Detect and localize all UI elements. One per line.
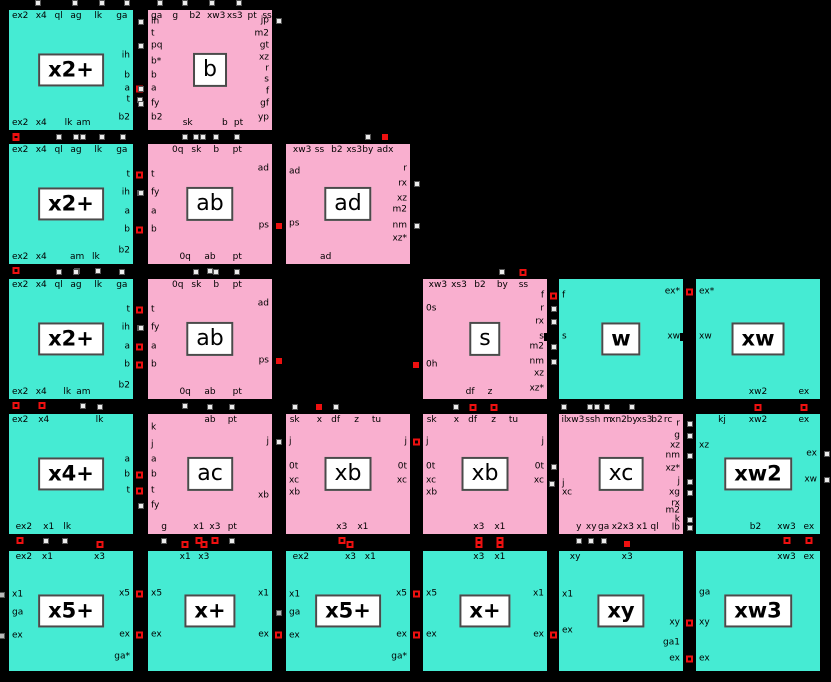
glue-label-xw3: xw3 bbox=[777, 553, 795, 562]
glue-label-ex: ex bbox=[669, 655, 680, 664]
glue-port-w bbox=[576, 538, 582, 544]
glue-label-ex: ex bbox=[799, 388, 810, 397]
glue-port-ro bbox=[96, 541, 103, 548]
glue-port-w bbox=[193, 134, 199, 140]
glue-label-xw: xw bbox=[699, 332, 712, 341]
glue-label-pt: pt bbox=[233, 388, 242, 397]
glue-port-ro bbox=[136, 487, 143, 494]
tile-type-label: x+ bbox=[459, 594, 510, 627]
glue-label-ga1: ga1 bbox=[663, 639, 680, 648]
glue-port-ro bbox=[413, 591, 420, 598]
glue-label-sk: sk bbox=[427, 416, 437, 425]
tile-ab[interactable]: ab0qskbptadps0qabpttfyab bbox=[146, 142, 274, 266]
tile-xc[interactable]: xcilxw3sshmxn2byxs3b2rcrgxznmxz*jxgrxm2k… bbox=[557, 412, 685, 536]
glue-label-h: h bbox=[595, 416, 601, 425]
glue-port-w bbox=[99, 134, 105, 140]
glue-label-ga: ga bbox=[116, 281, 127, 290]
glue-label-t: t bbox=[126, 306, 130, 315]
glue-label-x5: x5 bbox=[119, 590, 130, 599]
glue-port-ro bbox=[338, 537, 345, 544]
glue-label-ih: ih bbox=[122, 189, 130, 198]
glue-label-xc: xc bbox=[397, 477, 407, 486]
glue-label-pt: pt bbox=[233, 253, 242, 262]
glue-label-xw3: xw3 bbox=[207, 12, 225, 21]
glue-label-x1: x1 bbox=[533, 590, 544, 599]
glue-label-xw2: xw2 bbox=[749, 416, 767, 425]
glue-label-0q: 0q bbox=[172, 281, 183, 290]
glue-label-gf: gf bbox=[260, 99, 269, 108]
glue-port-w bbox=[588, 538, 594, 544]
glue-port-w bbox=[414, 181, 420, 187]
glue-port-bk bbox=[544, 333, 552, 341]
tile-type-label: xy bbox=[597, 594, 644, 627]
glue-label-lk: lk bbox=[94, 146, 102, 155]
glue-port-g bbox=[0, 633, 5, 639]
glue-label-pt: pt bbox=[233, 146, 242, 155]
glue-label-x1: x1 bbox=[357, 523, 368, 532]
glue-label-gt: gt bbox=[260, 42, 269, 51]
glue-label-a: a bbox=[151, 85, 157, 94]
glue-port-w bbox=[687, 421, 693, 427]
glue-label-b: b bbox=[124, 471, 130, 480]
glue-label-g: g bbox=[161, 523, 167, 532]
glue-label-b: b bbox=[151, 72, 157, 81]
glue-label-0q: 0q bbox=[179, 388, 190, 397]
glue-label-b: b bbox=[124, 72, 130, 81]
glue-port-w bbox=[687, 453, 693, 459]
glue-label-j: j bbox=[426, 437, 429, 446]
glue-port-w bbox=[72, 0, 78, 6]
glue-port-w bbox=[687, 433, 693, 439]
glue-label-lh: lh bbox=[151, 18, 159, 27]
glue-label-x4: x4 bbox=[36, 281, 47, 290]
glue-port-w bbox=[207, 268, 213, 274]
glue-port-ro bbox=[520, 269, 527, 276]
glue-label-x1: x1 bbox=[494, 523, 505, 532]
glue-port-w bbox=[97, 404, 103, 410]
glue-port-w bbox=[365, 134, 371, 140]
glue-port-ro bbox=[347, 541, 354, 548]
glue-label-x1: x1 bbox=[289, 591, 300, 600]
glue-label-a: a bbox=[124, 343, 130, 352]
glue-port-w bbox=[234, 269, 240, 275]
glue-label-xz: xz bbox=[534, 369, 544, 378]
glue-port-w bbox=[43, 538, 49, 544]
glue-label-ql: ql bbox=[54, 281, 62, 290]
glue-label-g: g bbox=[172, 12, 178, 21]
glue-port-w bbox=[209, 0, 215, 6]
glue-label-pt: pt bbox=[233, 281, 242, 290]
glue-port-w bbox=[56, 269, 62, 275]
glue-port-ro bbox=[211, 537, 218, 544]
tile-b[interactable]: bgagb2xw3xs3ptssjpm2gtxzrsfgfypskbptlhtp… bbox=[146, 8, 274, 132]
tile-type-label: x4+ bbox=[38, 457, 104, 490]
glue-label-ga: ga bbox=[598, 523, 609, 532]
glue-port-w bbox=[549, 481, 555, 487]
glue-label-xw3: xw3 bbox=[777, 523, 795, 532]
glue-label-ex: ex bbox=[533, 631, 544, 640]
tile-ac[interactable]: acabptjxbgx1x3ptkjabtfy bbox=[146, 412, 274, 536]
glue-label-x3: x3 bbox=[209, 523, 220, 532]
glue-port-w bbox=[138, 19, 144, 25]
glue-label-b2: b2 bbox=[331, 146, 342, 155]
glue-port-w bbox=[824, 477, 830, 483]
glue-label-t: t bbox=[126, 96, 130, 105]
glue-label-t: t bbox=[151, 30, 155, 39]
glue-label-ga*: ga* bbox=[391, 652, 407, 661]
tile-x2+[interactable]: x2+ex2x4qlaglkgatihabb2ex2x4amlk bbox=[7, 142, 135, 266]
glue-label-sk: sk bbox=[290, 416, 300, 425]
glue-label-0t: 0t bbox=[535, 462, 544, 471]
glue-port-w bbox=[276, 439, 282, 445]
glue-port-w bbox=[120, 134, 126, 140]
glue-label-tu: tu bbox=[372, 416, 381, 425]
glue-label-xy: xy bbox=[669, 619, 680, 628]
glue-label-xw3: xw3 bbox=[293, 146, 311, 155]
glue-port-w bbox=[499, 269, 505, 275]
glue-label-a: a bbox=[124, 85, 130, 94]
glue-label-t: t bbox=[151, 486, 155, 495]
glue-label-ex2: ex2 bbox=[12, 281, 28, 290]
glue-label-xy: xy bbox=[570, 553, 581, 562]
glue-label-b2: b2 bbox=[750, 523, 761, 532]
glue-label-ih: ih bbox=[122, 324, 130, 333]
glue-port-ro bbox=[136, 632, 143, 639]
glue-label-am: am bbox=[76, 388, 90, 397]
glue-port-ro bbox=[275, 632, 282, 639]
glue-port-g bbox=[0, 592, 5, 598]
glue-label-x4: x4 bbox=[36, 146, 47, 155]
glue-label-b: b bbox=[151, 471, 157, 480]
glue-label-lk: lk bbox=[63, 388, 71, 397]
glue-label-b2: b2 bbox=[151, 114, 162, 123]
glue-port-ro bbox=[686, 620, 693, 627]
glue-label-ex2: ex2 bbox=[16, 523, 32, 532]
glue-label-ql: ql bbox=[54, 12, 62, 21]
glue-label-ex2: ex2 bbox=[12, 253, 28, 262]
tile-type-label: xb bbox=[462, 457, 509, 491]
glue-label-ga: ga bbox=[699, 589, 710, 598]
glue-label-x5: x5 bbox=[396, 590, 407, 599]
glue-port-w bbox=[333, 404, 339, 410]
glue-port-w bbox=[193, 269, 199, 275]
glue-port-g bbox=[276, 610, 282, 616]
tile-ad[interactable]: adxw3ssb2xs3byadxrrxxzm2nmxz*adadps bbox=[284, 142, 412, 266]
glue-port-w bbox=[99, 0, 105, 6]
glue-label-j: j bbox=[541, 437, 544, 446]
glue-port-ro bbox=[136, 172, 143, 179]
glue-label-s: s bbox=[562, 332, 567, 341]
glue-label-0q: 0q bbox=[179, 253, 190, 262]
glue-label-z: z bbox=[354, 416, 359, 425]
glue-port-w bbox=[604, 404, 610, 410]
glue-label-x4: x4 bbox=[36, 388, 47, 397]
glue-label-x: x bbox=[454, 416, 459, 425]
glue-label-lk: lk bbox=[96, 416, 104, 425]
glue-port-w bbox=[182, 403, 188, 409]
glue-label-ex: ex bbox=[426, 631, 437, 640]
glue-label-0t: 0t bbox=[289, 462, 298, 471]
glue-port-w bbox=[687, 490, 693, 496]
tile-x+[interactable]: x+x3x1x1exx5ex bbox=[421, 549, 549, 673]
tile-type-label: s bbox=[469, 322, 500, 356]
glue-label-df: df bbox=[468, 416, 477, 425]
glue-port-w bbox=[138, 43, 144, 49]
glue-label-xz: xz bbox=[699, 442, 709, 451]
glue-label-xs3: xs3 bbox=[346, 146, 362, 155]
glue-label-ss: ss bbox=[315, 146, 324, 155]
glue-label-ga*: ga* bbox=[114, 652, 130, 661]
glue-label-ab: ab bbox=[204, 253, 215, 262]
glue-label-sk: sk bbox=[183, 119, 193, 128]
glue-port-w bbox=[453, 404, 459, 410]
glue-label-ex2: ex2 bbox=[293, 553, 309, 562]
glue-port-ro bbox=[496, 541, 503, 548]
tile-type-label: x5+ bbox=[38, 594, 104, 627]
glue-port-ro bbox=[182, 541, 189, 548]
tile-x5+[interactable]: x5+ex2x1x3x5exga*x1gaex bbox=[7, 549, 135, 673]
glue-port-rf bbox=[413, 362, 419, 368]
glue-port-rf bbox=[276, 223, 282, 229]
glue-label-xs3: xs3 bbox=[637, 416, 653, 425]
tile-x4+[interactable]: x4+ex2x4lkabtex2x1lk bbox=[7, 412, 135, 536]
glue-label-xg: xg bbox=[669, 489, 680, 498]
glue-label-nm: nm bbox=[530, 357, 544, 366]
glue-label-ab: ab bbox=[204, 388, 215, 397]
glue-label-b: b bbox=[124, 226, 130, 235]
glue-label-j: j bbox=[151, 441, 154, 450]
tile-xb[interactable]: xbskxdfztuj0txcx3x1j0txcxb bbox=[421, 412, 549, 536]
tile-xw2[interactable]: xw2kjxw2exexxwb2xw3exxz bbox=[694, 412, 822, 536]
glue-port-ro bbox=[550, 632, 557, 639]
glue-port-w bbox=[80, 403, 86, 409]
glue-label-r: r bbox=[540, 305, 544, 314]
glue-label-xw3: xw3 bbox=[429, 281, 447, 290]
glue-label-ps: ps bbox=[289, 220, 299, 229]
glue-label-f: f bbox=[266, 87, 269, 96]
glue-label-a: a bbox=[151, 455, 157, 464]
glue-label-t: t bbox=[151, 171, 155, 180]
glue-label-a: a bbox=[124, 208, 130, 217]
glue-label-ex: ex bbox=[396, 631, 407, 640]
glue-port-ro bbox=[200, 541, 207, 548]
glue-port-w bbox=[161, 538, 167, 544]
glue-label-z: z bbox=[491, 416, 496, 425]
glue-label-xc: xc bbox=[426, 477, 436, 486]
glue-label-df: df bbox=[331, 416, 340, 425]
glue-label-ex: ex bbox=[562, 627, 573, 636]
glue-label-z: z bbox=[488, 388, 493, 397]
glue-label-xy: xy bbox=[586, 523, 597, 532]
glue-port-w bbox=[73, 134, 79, 140]
glue-label-xw2: xw2 bbox=[749, 388, 767, 397]
glue-label-x3: x3 bbox=[198, 553, 209, 562]
glue-port-w bbox=[207, 404, 213, 410]
glue-label-j: j bbox=[266, 437, 269, 446]
tile-x+[interactable]: x+x1x3x1exx5ex bbox=[146, 549, 274, 673]
glue-label-xb: xb bbox=[289, 489, 300, 498]
glue-label-ag: ag bbox=[70, 12, 81, 21]
glue-port-w bbox=[200, 134, 206, 140]
tile-ab[interactable]: ab0qskbptadps0qabpttfyab bbox=[146, 277, 274, 401]
glue-port-w bbox=[213, 269, 219, 275]
glue-label-b2: b2 bbox=[119, 246, 130, 255]
glue-port-w bbox=[234, 134, 240, 140]
glue-port-ro bbox=[475, 541, 482, 548]
glue-label-fy: fy bbox=[151, 324, 159, 333]
glue-label-xn2: xn2 bbox=[610, 416, 627, 425]
glue-label-ad: ad bbox=[289, 167, 300, 176]
glue-label-xs3: xs3 bbox=[451, 281, 467, 290]
glue-port-ro bbox=[755, 404, 762, 411]
glue-label-b*: b* bbox=[151, 57, 161, 66]
glue-label-j: j bbox=[677, 478, 680, 487]
glue-label-ex: ex bbox=[699, 655, 710, 664]
glue-label-b2: b2 bbox=[189, 12, 200, 21]
glue-label-ex*: ex* bbox=[665, 288, 680, 297]
glue-label-s: s bbox=[264, 75, 269, 84]
glue-port-ro bbox=[39, 402, 46, 409]
glue-label-x4: x4 bbox=[36, 12, 47, 21]
tile-type-label: x2+ bbox=[38, 53, 104, 86]
glue-label-f: f bbox=[541, 291, 544, 300]
glue-label-kj: kj bbox=[718, 416, 726, 425]
glue-label-f: f bbox=[562, 291, 565, 300]
glue-label-pt: pt bbox=[234, 119, 243, 128]
glue-port-rf bbox=[624, 541, 630, 547]
glue-port-w bbox=[138, 503, 144, 509]
glue-label-xb: xb bbox=[258, 491, 269, 500]
glue-label-r: r bbox=[265, 64, 269, 73]
glue-port-w bbox=[95, 268, 101, 274]
glue-port-w bbox=[124, 0, 130, 6]
glue-port-w bbox=[229, 404, 235, 410]
glue-label-fy: fy bbox=[151, 99, 159, 108]
glue-port-ro bbox=[17, 537, 24, 544]
glue-label-x1: x1 bbox=[180, 553, 191, 562]
glue-label-xs3: xs3 bbox=[227, 12, 243, 21]
glue-label-x4: x4 bbox=[36, 253, 47, 262]
glue-label-x3: x3 bbox=[473, 553, 484, 562]
glue-label-pt: pt bbox=[228, 416, 237, 425]
glue-label-fy: fy bbox=[151, 502, 159, 511]
glue-label-ag: ag bbox=[70, 146, 81, 155]
glue-label-j: j bbox=[289, 437, 292, 446]
tile-w[interactable]: wex*xwfs bbox=[557, 277, 685, 401]
glue-label-am: am bbox=[76, 119, 90, 128]
glue-label-x4: x4 bbox=[38, 416, 49, 425]
glue-label-a: a bbox=[124, 455, 130, 464]
glue-label-ex*: ex* bbox=[699, 288, 714, 297]
tile-x2+[interactable]: x2+ex2x4qlaglkgaihbatb2ex2x4lkam bbox=[7, 8, 135, 132]
tile-x2+[interactable]: x2+ex2x4qlaglkgatihabb2ex2x4lkam bbox=[7, 277, 135, 401]
glue-port-ro bbox=[13, 267, 20, 274]
glue-port-w bbox=[292, 404, 298, 410]
tile-xw3[interactable]: xw3xw3exgaxyex bbox=[694, 549, 822, 673]
glue-label-rx: rx bbox=[398, 179, 407, 188]
tile-s[interactable]: sxw3xs3b2byssfrrxsm2nmxzxz*dfz0s0h bbox=[421, 277, 549, 401]
tile-x5+[interactable]: x5+ex2x3x1x5exga*x1gaex bbox=[284, 549, 412, 673]
glue-label-ps: ps bbox=[259, 221, 269, 230]
glue-label-ss: ss bbox=[585, 416, 594, 425]
glue-port-ro bbox=[490, 404, 497, 411]
glue-label-adx: adx bbox=[377, 146, 394, 155]
tile-xb[interactable]: xbskxdfztuj0txcx3x1j0txcxb bbox=[284, 412, 412, 536]
glue-label-jp: jp bbox=[261, 16, 269, 25]
glue-label-xz*: xz* bbox=[665, 465, 680, 474]
glue-label-sk: sk bbox=[191, 146, 201, 155]
glue-port-ro bbox=[136, 362, 143, 369]
tile-type-label: ab bbox=[186, 187, 233, 221]
glue-label-pt: pt bbox=[248, 12, 257, 21]
glue-port-ro bbox=[136, 472, 143, 479]
glue-label-b2: b2 bbox=[651, 416, 662, 425]
glue-label-x1: x1 bbox=[42, 553, 53, 562]
tile-type-label: b bbox=[193, 53, 227, 87]
glue-label-ih: ih bbox=[122, 51, 130, 60]
glue-label-sk: sk bbox=[191, 281, 201, 290]
glue-port-ro bbox=[783, 537, 790, 544]
glue-port-w bbox=[138, 101, 144, 107]
glue-port-w bbox=[213, 134, 219, 140]
tile-xy[interactable]: xyxyx3xyga1exx1ex bbox=[557, 549, 685, 673]
glue-label-b: b bbox=[213, 281, 219, 290]
glue-label-ql: ql bbox=[650, 523, 658, 532]
glue-port-ro bbox=[686, 289, 693, 296]
glue-port-ro bbox=[805, 537, 812, 544]
glue-label-lb: lb bbox=[672, 524, 680, 533]
glue-port-w bbox=[138, 325, 144, 331]
glue-label-xz*: xz* bbox=[392, 234, 407, 243]
tile-xw[interactable]: xwxw2exex*xw bbox=[694, 277, 822, 401]
glue-label-ex: ex bbox=[258, 631, 269, 640]
glue-label-ex2: ex2 bbox=[12, 388, 28, 397]
glue-label-ql: ql bbox=[54, 146, 62, 155]
glue-port-w bbox=[119, 269, 125, 275]
glue-port-w bbox=[182, 134, 188, 140]
glue-label-by: by bbox=[497, 281, 508, 290]
tile-type-label: ab bbox=[186, 322, 233, 356]
glue-label-t: t bbox=[126, 486, 130, 495]
glue-label-lk: lk bbox=[94, 12, 102, 21]
glue-label-x1: x1 bbox=[562, 591, 573, 600]
glue-label-xz: xz bbox=[259, 54, 269, 63]
glue-label-ex: ex bbox=[289, 632, 300, 641]
glue-label-0h: 0h bbox=[426, 361, 437, 370]
glue-label-lk: lk bbox=[92, 253, 100, 262]
glue-label-x1: x1 bbox=[193, 523, 204, 532]
glue-label-ex: ex bbox=[803, 553, 814, 562]
glue-label-b: b bbox=[151, 361, 157, 370]
glue-label-ss: ss bbox=[519, 281, 528, 290]
glue-port-w bbox=[80, 134, 86, 140]
glue-label-x1: x1 bbox=[494, 553, 505, 562]
glue-label-x1: x1 bbox=[43, 523, 54, 532]
glue-port-ro bbox=[136, 344, 143, 351]
glue-port-w bbox=[276, 18, 282, 24]
glue-port-w bbox=[687, 525, 693, 531]
glue-label-b: b bbox=[151, 226, 157, 235]
glue-label-x3: x3 bbox=[622, 553, 633, 562]
glue-port-w bbox=[601, 538, 607, 544]
glue-port-ro bbox=[800, 404, 807, 411]
glue-label-x5: x5 bbox=[426, 590, 437, 599]
glue-label-yp: yp bbox=[258, 114, 269, 123]
glue-port-w bbox=[157, 0, 163, 6]
glue-label-b: b bbox=[124, 361, 130, 370]
glue-label-ad: ad bbox=[320, 253, 331, 262]
glue-label-lk: lk bbox=[65, 119, 73, 128]
